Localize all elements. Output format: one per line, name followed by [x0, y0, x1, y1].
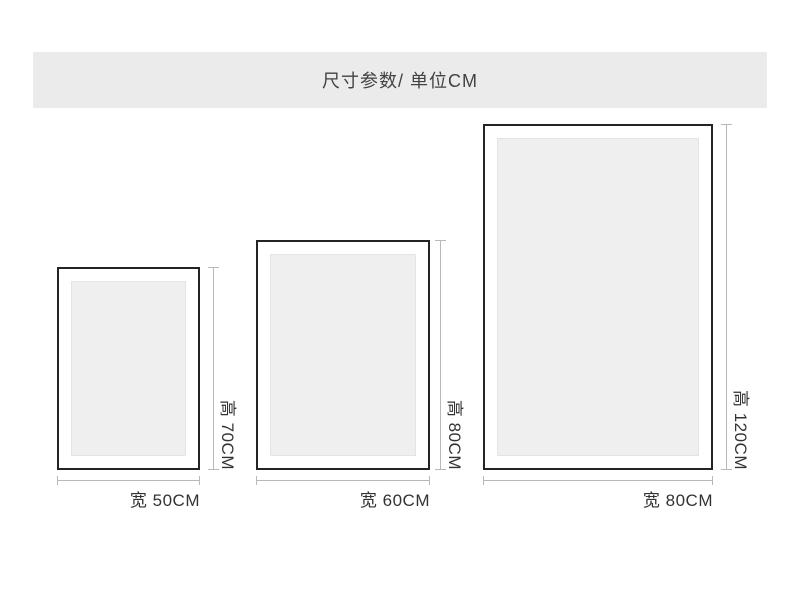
width-label: 宽 80CM — [643, 486, 713, 511]
picture-frame — [256, 240, 430, 470]
picture-frame — [57, 267, 200, 470]
height-dimension-line — [213, 267, 214, 470]
frame-artwork-area — [270, 254, 416, 456]
height-dimension-line — [726, 124, 727, 470]
width-dimension-line — [256, 480, 430, 481]
width-dimension-line — [57, 480, 200, 481]
dimension-tick — [256, 476, 257, 485]
dimension-tick — [483, 476, 484, 485]
width-label: 宽 50CM — [130, 486, 200, 511]
dimension-tick — [435, 240, 446, 241]
frame-artwork-area — [71, 281, 186, 456]
dimension-tick — [712, 476, 713, 485]
width-dimension-line — [483, 480, 713, 481]
dimension-tick — [721, 124, 732, 125]
dimension-tick — [57, 476, 58, 485]
height-dimension-line — [440, 240, 441, 470]
dimension-tick — [208, 267, 219, 268]
height-label: 高 80CM — [444, 400, 464, 470]
frame-artwork-area — [497, 138, 699, 456]
dimension-tick — [199, 476, 200, 485]
height-label: 高 120CM — [730, 390, 750, 470]
width-label: 宽 60CM — [360, 486, 430, 511]
size-spec-diagram: 尺寸参数/ 单位CM 高 70CM 宽 50CM 高 80CM 宽 — [0, 0, 800, 600]
height-label: 高 70CM — [217, 400, 237, 470]
dimension-tick — [429, 476, 430, 485]
picture-frame — [483, 124, 713, 470]
page-title: 尺寸参数/ 单位CM — [322, 67, 478, 93]
header-bar: 尺寸参数/ 单位CM — [33, 52, 767, 108]
